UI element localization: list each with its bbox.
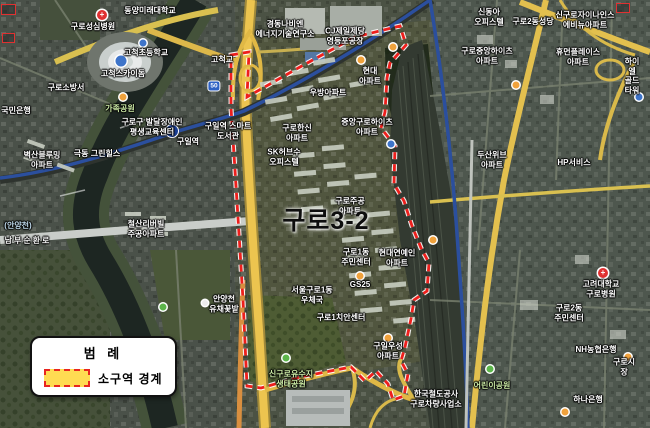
red-cross-marker[interactable]: + xyxy=(598,268,608,278)
red-tag xyxy=(2,33,15,43)
orange-marker[interactable] xyxy=(358,57,365,64)
green-marker[interactable] xyxy=(283,355,290,362)
green-marker[interactable] xyxy=(160,304,167,311)
orange-marker[interactable] xyxy=(430,237,437,244)
blue-lg-marker[interactable] xyxy=(116,56,127,67)
red-tag xyxy=(1,4,16,15)
legend-item-label: 소구역 경계 xyxy=(98,370,163,387)
legend-box: 범 례 소구역 경계 xyxy=(30,336,177,397)
blue-marker[interactable] xyxy=(140,40,147,47)
orange-marker[interactable] xyxy=(385,335,392,342)
red-cross-marker[interactable]: + xyxy=(97,10,107,20)
orange-marker[interactable] xyxy=(357,273,364,280)
orange-marker[interactable] xyxy=(390,44,397,51)
route-shield: 50 xyxy=(207,81,220,92)
blue-marker[interactable] xyxy=(636,94,643,101)
red-tag xyxy=(616,3,630,13)
orange-marker[interactable] xyxy=(120,94,127,101)
subway-line1-badge: 1 xyxy=(165,124,179,138)
orange-marker[interactable] xyxy=(513,82,520,89)
legend-title: 범 례 xyxy=(32,343,175,362)
orange-marker[interactable] xyxy=(625,354,632,361)
map-screenshot: 구로성심병원동양미래대학교고척초등학교고척스카이돔구로소방서가족공원국민은행구로… xyxy=(0,0,650,428)
white-marker[interactable] xyxy=(202,300,208,306)
orange-marker[interactable] xyxy=(562,409,569,416)
green-marker[interactable] xyxy=(487,366,494,373)
blue-marker[interactable] xyxy=(388,141,395,148)
boundary-swatch xyxy=(44,369,90,387)
legend-row: 소구역 경계 xyxy=(44,369,175,387)
